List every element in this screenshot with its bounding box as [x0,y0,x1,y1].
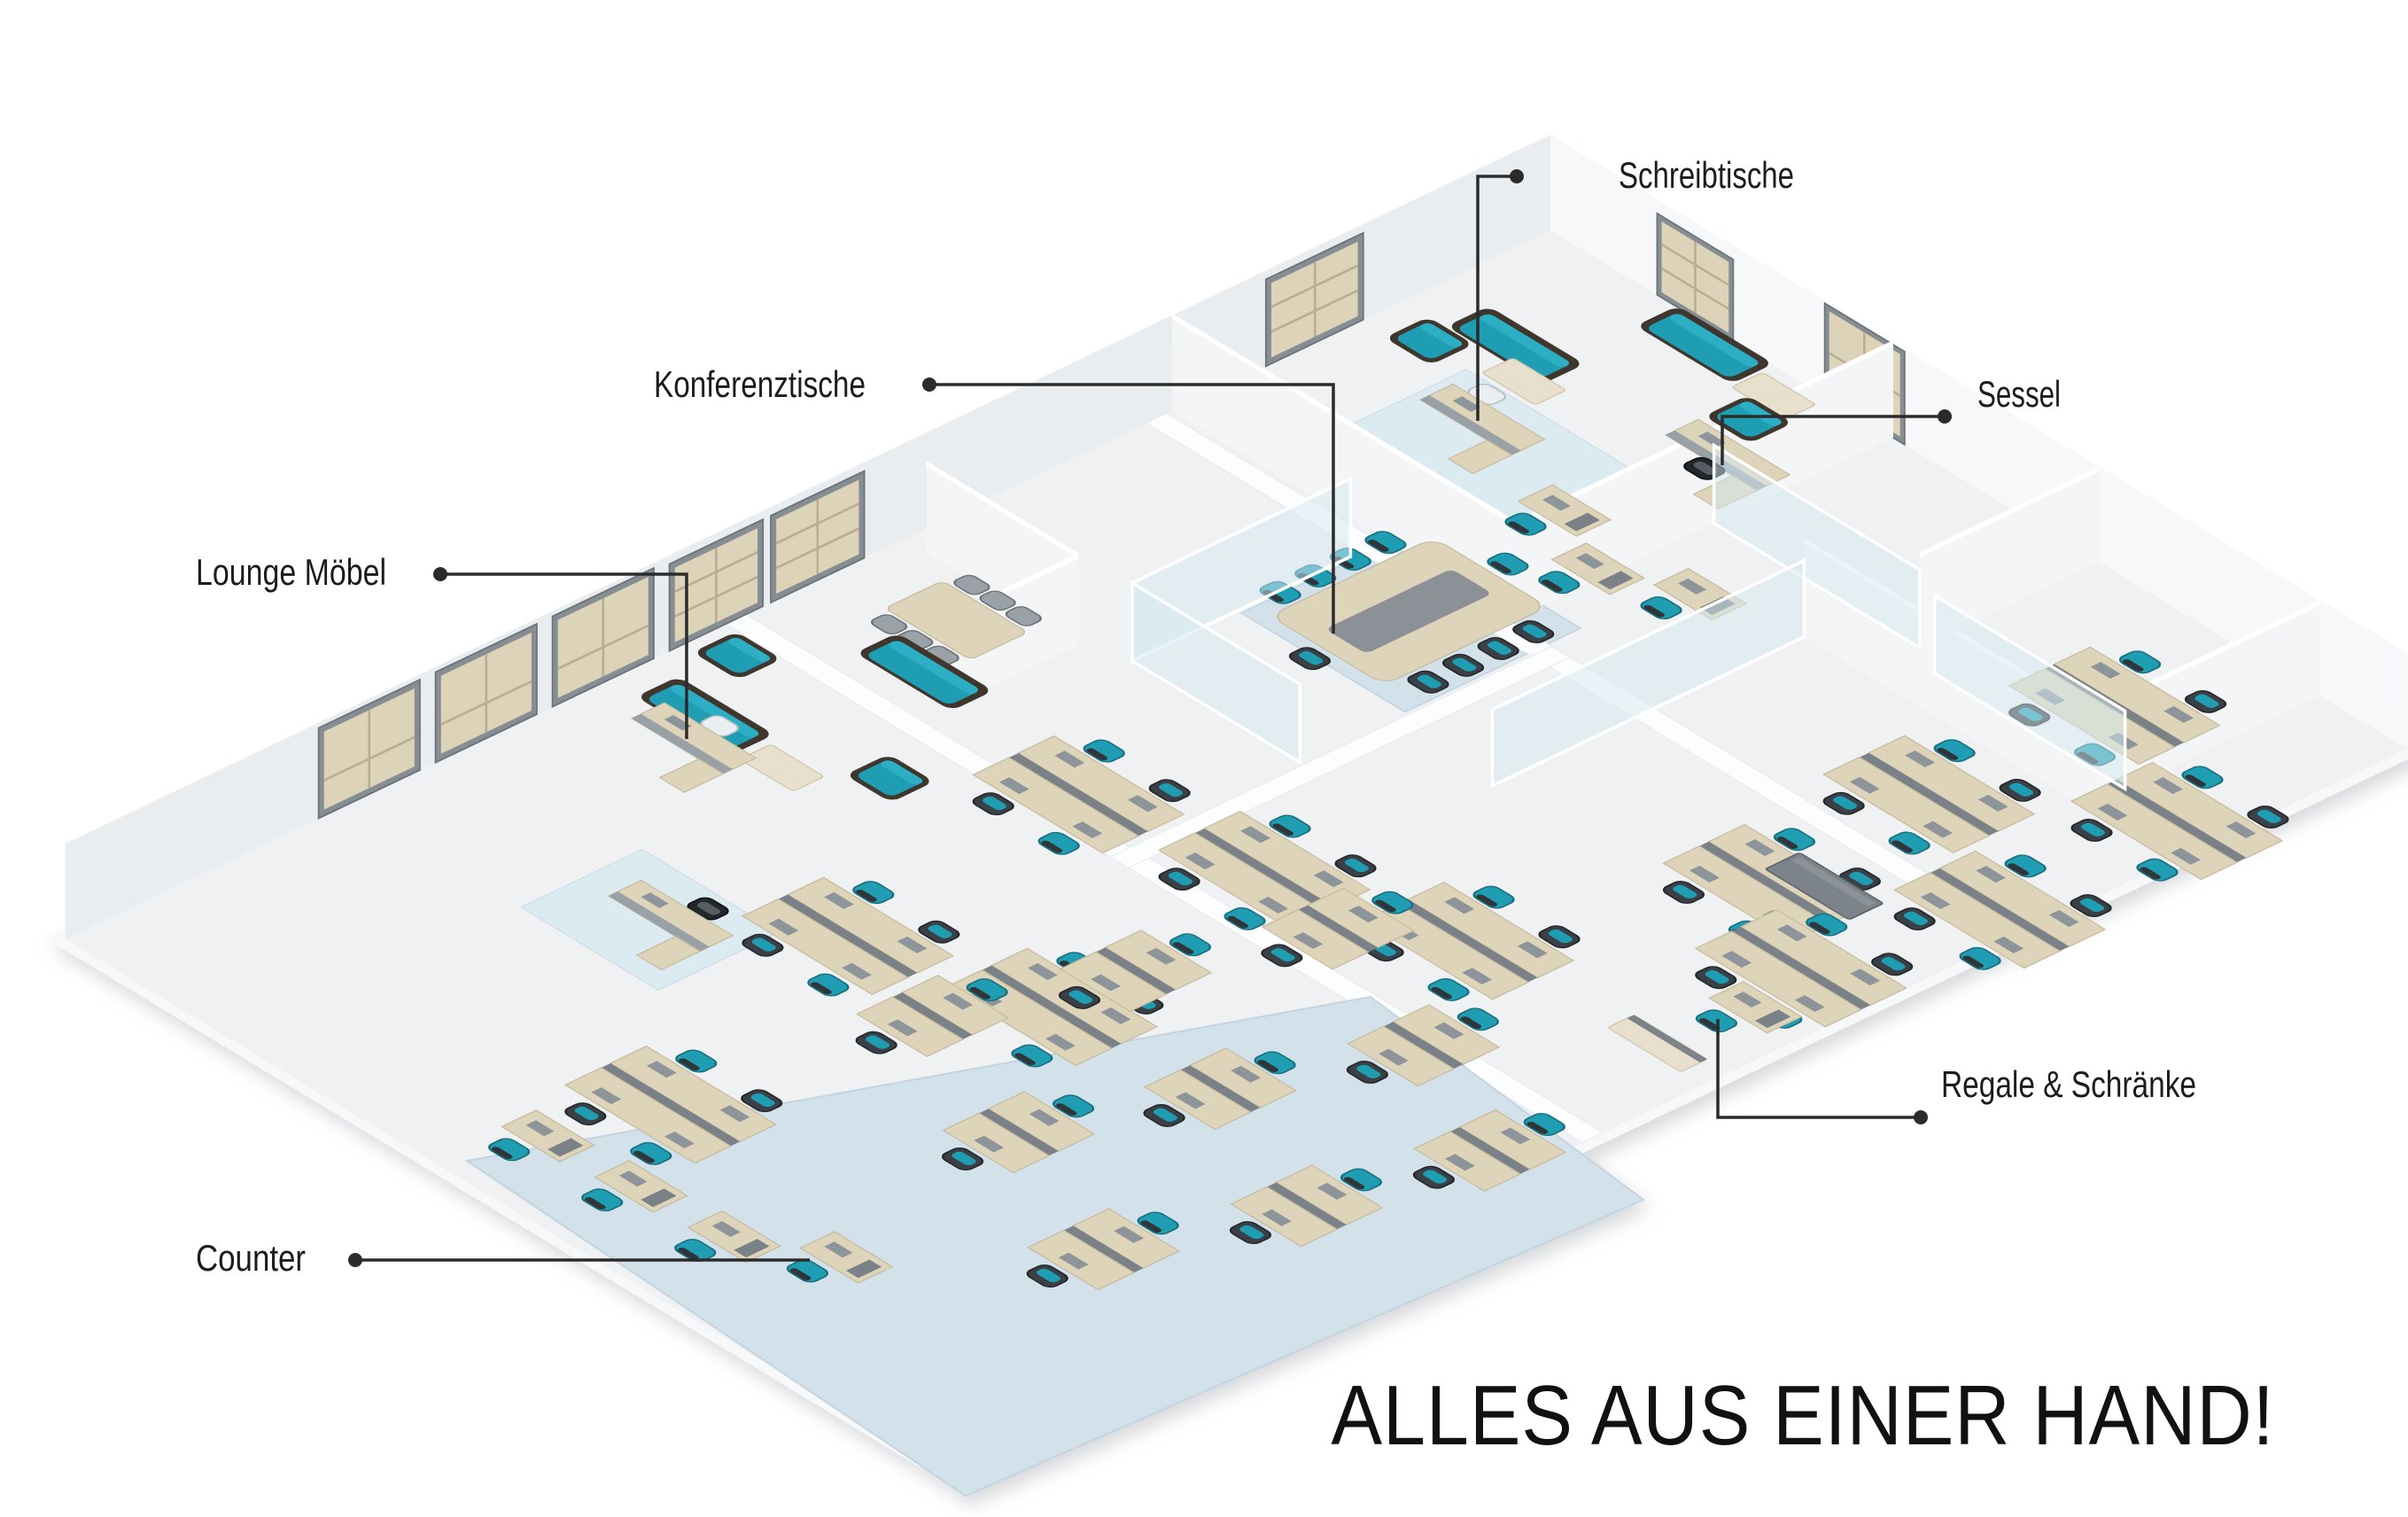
label-regale-schraenke: Regale & Schränke [1941,1063,2196,1105]
slogan-text: ALLES AUS EINER HAND! [1332,1368,2275,1463]
office-floorplan-illustration: Schreibtische Sessel Konferenztische Lou… [0,0,2408,1517]
label-schreibtische: Schreibtische [1619,154,1794,196]
isometric-office-scene: Schreibtische Sessel Konferenztische Lou… [0,0,2408,1517]
label-counter: Counter [196,1237,306,1279]
label-sessel: Sessel [1977,373,2061,415]
label-lounge-moebel: Lounge Möbel [196,551,386,593]
label-konferenztische: Konferenztische [654,363,866,405]
